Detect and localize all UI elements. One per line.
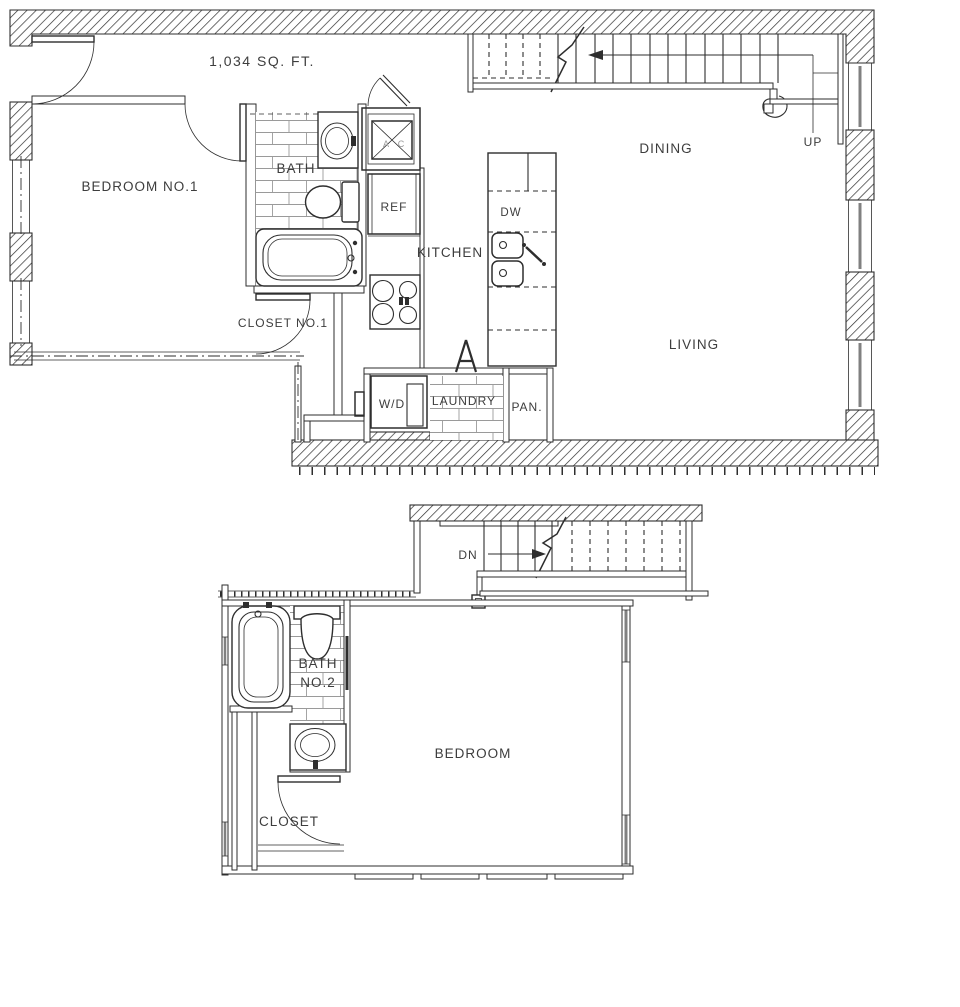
landing-edge [480, 591, 708, 596]
closet1-top-wall [254, 286, 364, 293]
floor-plan-drawing: A C [0, 0, 960, 1007]
ac-label-a: A [383, 139, 389, 149]
bathtub2 [232, 606, 290, 708]
stove-controls [405, 297, 409, 305]
kitchen-island [488, 153, 556, 366]
floor-plan: A C [0, 0, 960, 1007]
dn-label: DN [458, 548, 477, 562]
toilet1-tank [342, 182, 359, 222]
landing-edge [770, 99, 843, 104]
left-wall-pier [10, 102, 32, 160]
newel-post [764, 104, 773, 113]
area-label: 1,034 SQ. FT. [209, 53, 315, 69]
kitchen-label: KITCHEN [417, 245, 483, 260]
laundry-label: LAUNDRY [432, 394, 496, 408]
stair-top-edge [440, 521, 558, 526]
bath1-label: BATH [276, 161, 315, 176]
dw-label: DW [500, 207, 521, 219]
bottom-window [487, 874, 547, 879]
bath1-faucet-icon [351, 136, 356, 146]
living-label: LIVING [669, 337, 719, 352]
faucet-handle [542, 262, 546, 266]
bottom-window [355, 874, 413, 879]
right-wall-pier [846, 130, 874, 200]
lower-bottom-wall [222, 866, 633, 874]
bath2-faucet-icon [313, 760, 318, 769]
bathtub1-tap [353, 241, 357, 245]
up-label: UP [804, 135, 823, 149]
lower-top-wall [410, 505, 702, 521]
right-wall-pier [846, 272, 874, 340]
bath2-label-line1: BATH [298, 656, 337, 671]
stair-right-wall [686, 521, 692, 600]
left-wall-pier [10, 233, 32, 281]
bottom-window [421, 874, 479, 879]
closet1-right-wall [334, 293, 342, 417]
bathtub2-tap [266, 602, 272, 608]
closet2-door-leaf [278, 776, 340, 782]
bottom-window [555, 874, 623, 879]
bath2-label-line2: NO.2 [300, 675, 336, 690]
closet1-label: CLOSET NO.1 [238, 316, 328, 330]
laundry-tile-floor [430, 376, 503, 440]
bedroom2-label: BEDROOM [435, 746, 512, 761]
bathtub1-tap [353, 270, 357, 274]
closet2-chase-wall [232, 712, 237, 870]
lower-north-wall [222, 600, 633, 606]
stove-controls [399, 297, 403, 305]
laundry-west-wall [364, 374, 370, 442]
bathtub2-tap [243, 602, 249, 608]
stair-left-wall [414, 521, 420, 593]
bedroom1-door-leaf [240, 104, 246, 161]
ac-label-c: C [398, 139, 405, 149]
stair-left-wall [468, 34, 473, 92]
stair-railing [477, 571, 690, 577]
dining-label: DINING [639, 141, 692, 156]
entry-door-leaf [32, 36, 94, 42]
faucet-handle [522, 243, 526, 247]
upper-bottom-wall [292, 440, 878, 466]
bedroom1-bath-wall [246, 104, 256, 286]
toilet1-bowl [306, 186, 341, 218]
toilet2-bowl [301, 614, 333, 659]
closet2-left-wall [252, 712, 257, 870]
wd-label: W/D [379, 397, 405, 411]
pantry-label: PAN. [511, 400, 542, 414]
closet1-door-leaf [256, 294, 310, 300]
ref-label: REF [381, 200, 408, 214]
stairwell-inner-wall [838, 34, 843, 144]
pantry-right-wall [547, 368, 553, 442]
pantry-left-wall [503, 368, 509, 442]
paper-background [0, 0, 960, 1007]
left-wall-pier [10, 343, 32, 365]
right-wall-pier [846, 410, 874, 442]
bedroom1-label: BEDROOM NO.1 [81, 179, 198, 194]
closet2-label: CLOSET [259, 814, 319, 829]
stair-railing [473, 83, 773, 89]
laundry-left-wall-v [304, 421, 310, 442]
